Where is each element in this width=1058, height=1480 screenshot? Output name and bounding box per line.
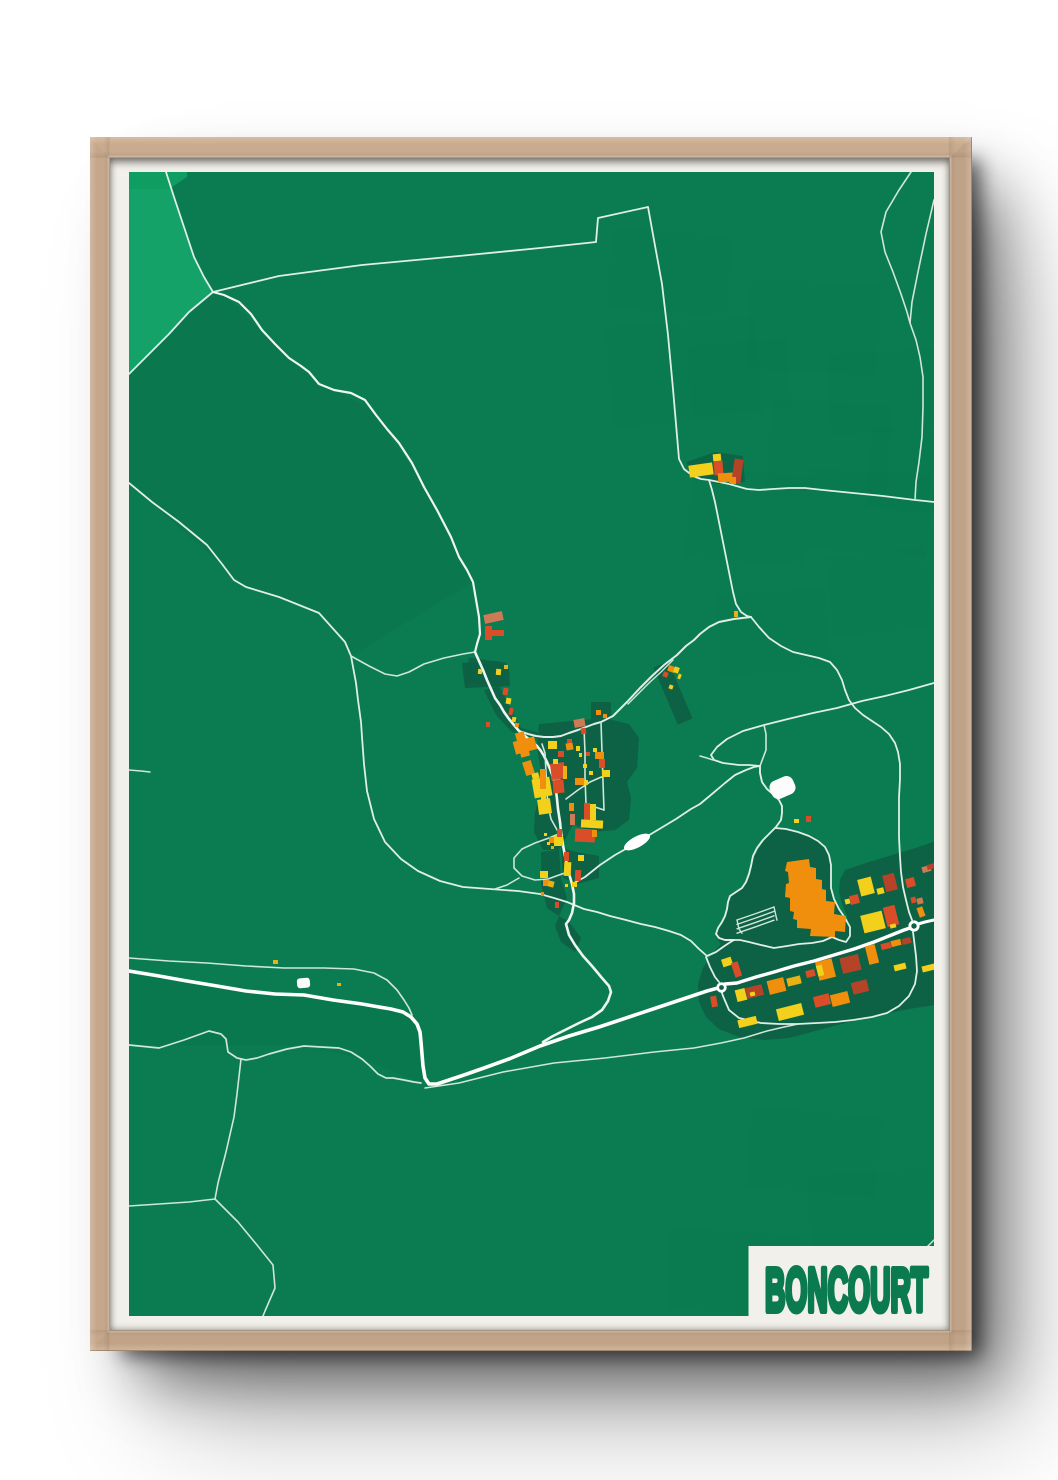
svg-text:BONCOURT: BONCOURT bbox=[765, 1257, 928, 1316]
